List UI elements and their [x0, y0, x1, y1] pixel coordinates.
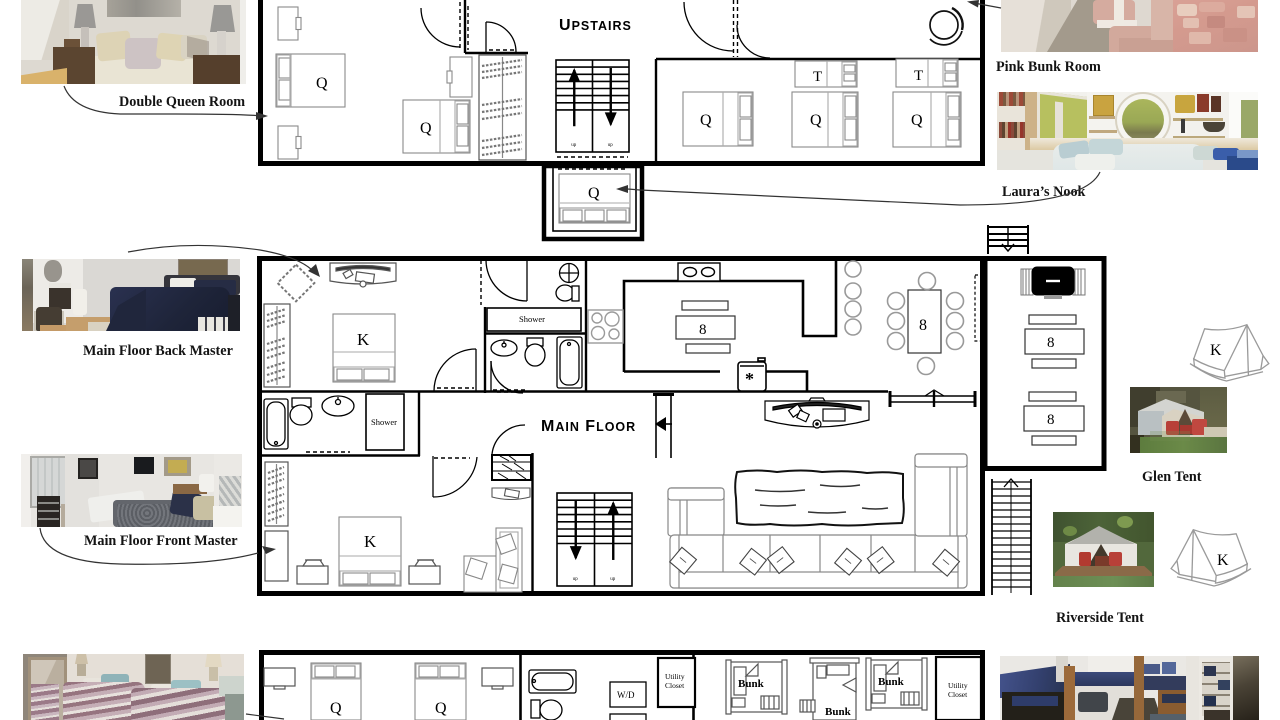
svg-text:Utility: Utility — [665, 672, 685, 681]
svg-text:Closet: Closet — [948, 690, 968, 699]
svg-text:up: up — [573, 577, 579, 582]
svg-text:Shower: Shower — [371, 417, 397, 427]
svg-text:up: up — [610, 577, 616, 582]
svg-text:Utility: Utility — [948, 681, 968, 690]
svg-text:T: T — [813, 69, 822, 85]
svg-text:Q: Q — [420, 120, 432, 137]
svg-text:8: 8 — [699, 322, 707, 338]
svg-text:Bunk: Bunk — [878, 676, 905, 688]
svg-text:K: K — [357, 330, 370, 349]
svg-text:Shower: Shower — [519, 314, 545, 324]
svg-text:MAIN FLOOR: MAIN FLOOR — [541, 418, 636, 435]
svg-text:W/D: W/D — [617, 690, 635, 700]
svg-text:Q: Q — [316, 75, 328, 92]
svg-text:8: 8 — [1047, 335, 1055, 351]
svg-text:8: 8 — [1047, 412, 1055, 428]
svg-text:K: K — [364, 532, 377, 551]
svg-text:Q: Q — [435, 700, 447, 717]
svg-text:UPSTAIRS: UPSTAIRS — [559, 17, 632, 34]
svg-text:Bunk: Bunk — [825, 706, 852, 718]
svg-text:T: T — [914, 68, 923, 84]
svg-text:*: * — [745, 369, 754, 389]
svg-text:K: K — [1217, 552, 1229, 569]
svg-text:up: up — [608, 143, 614, 148]
svg-text:Q: Q — [911, 112, 923, 129]
svg-text:Q: Q — [700, 112, 712, 129]
svg-text:Q: Q — [588, 185, 600, 202]
svg-text:Bunk: Bunk — [738, 678, 765, 690]
svg-text:8: 8 — [919, 317, 927, 334]
svg-text:Closet: Closet — [665, 681, 685, 690]
svg-text:K: K — [1210, 342, 1222, 359]
svg-text:Q: Q — [810, 112, 822, 129]
svg-text:Q: Q — [330, 700, 342, 717]
svg-text:up: up — [571, 143, 577, 148]
